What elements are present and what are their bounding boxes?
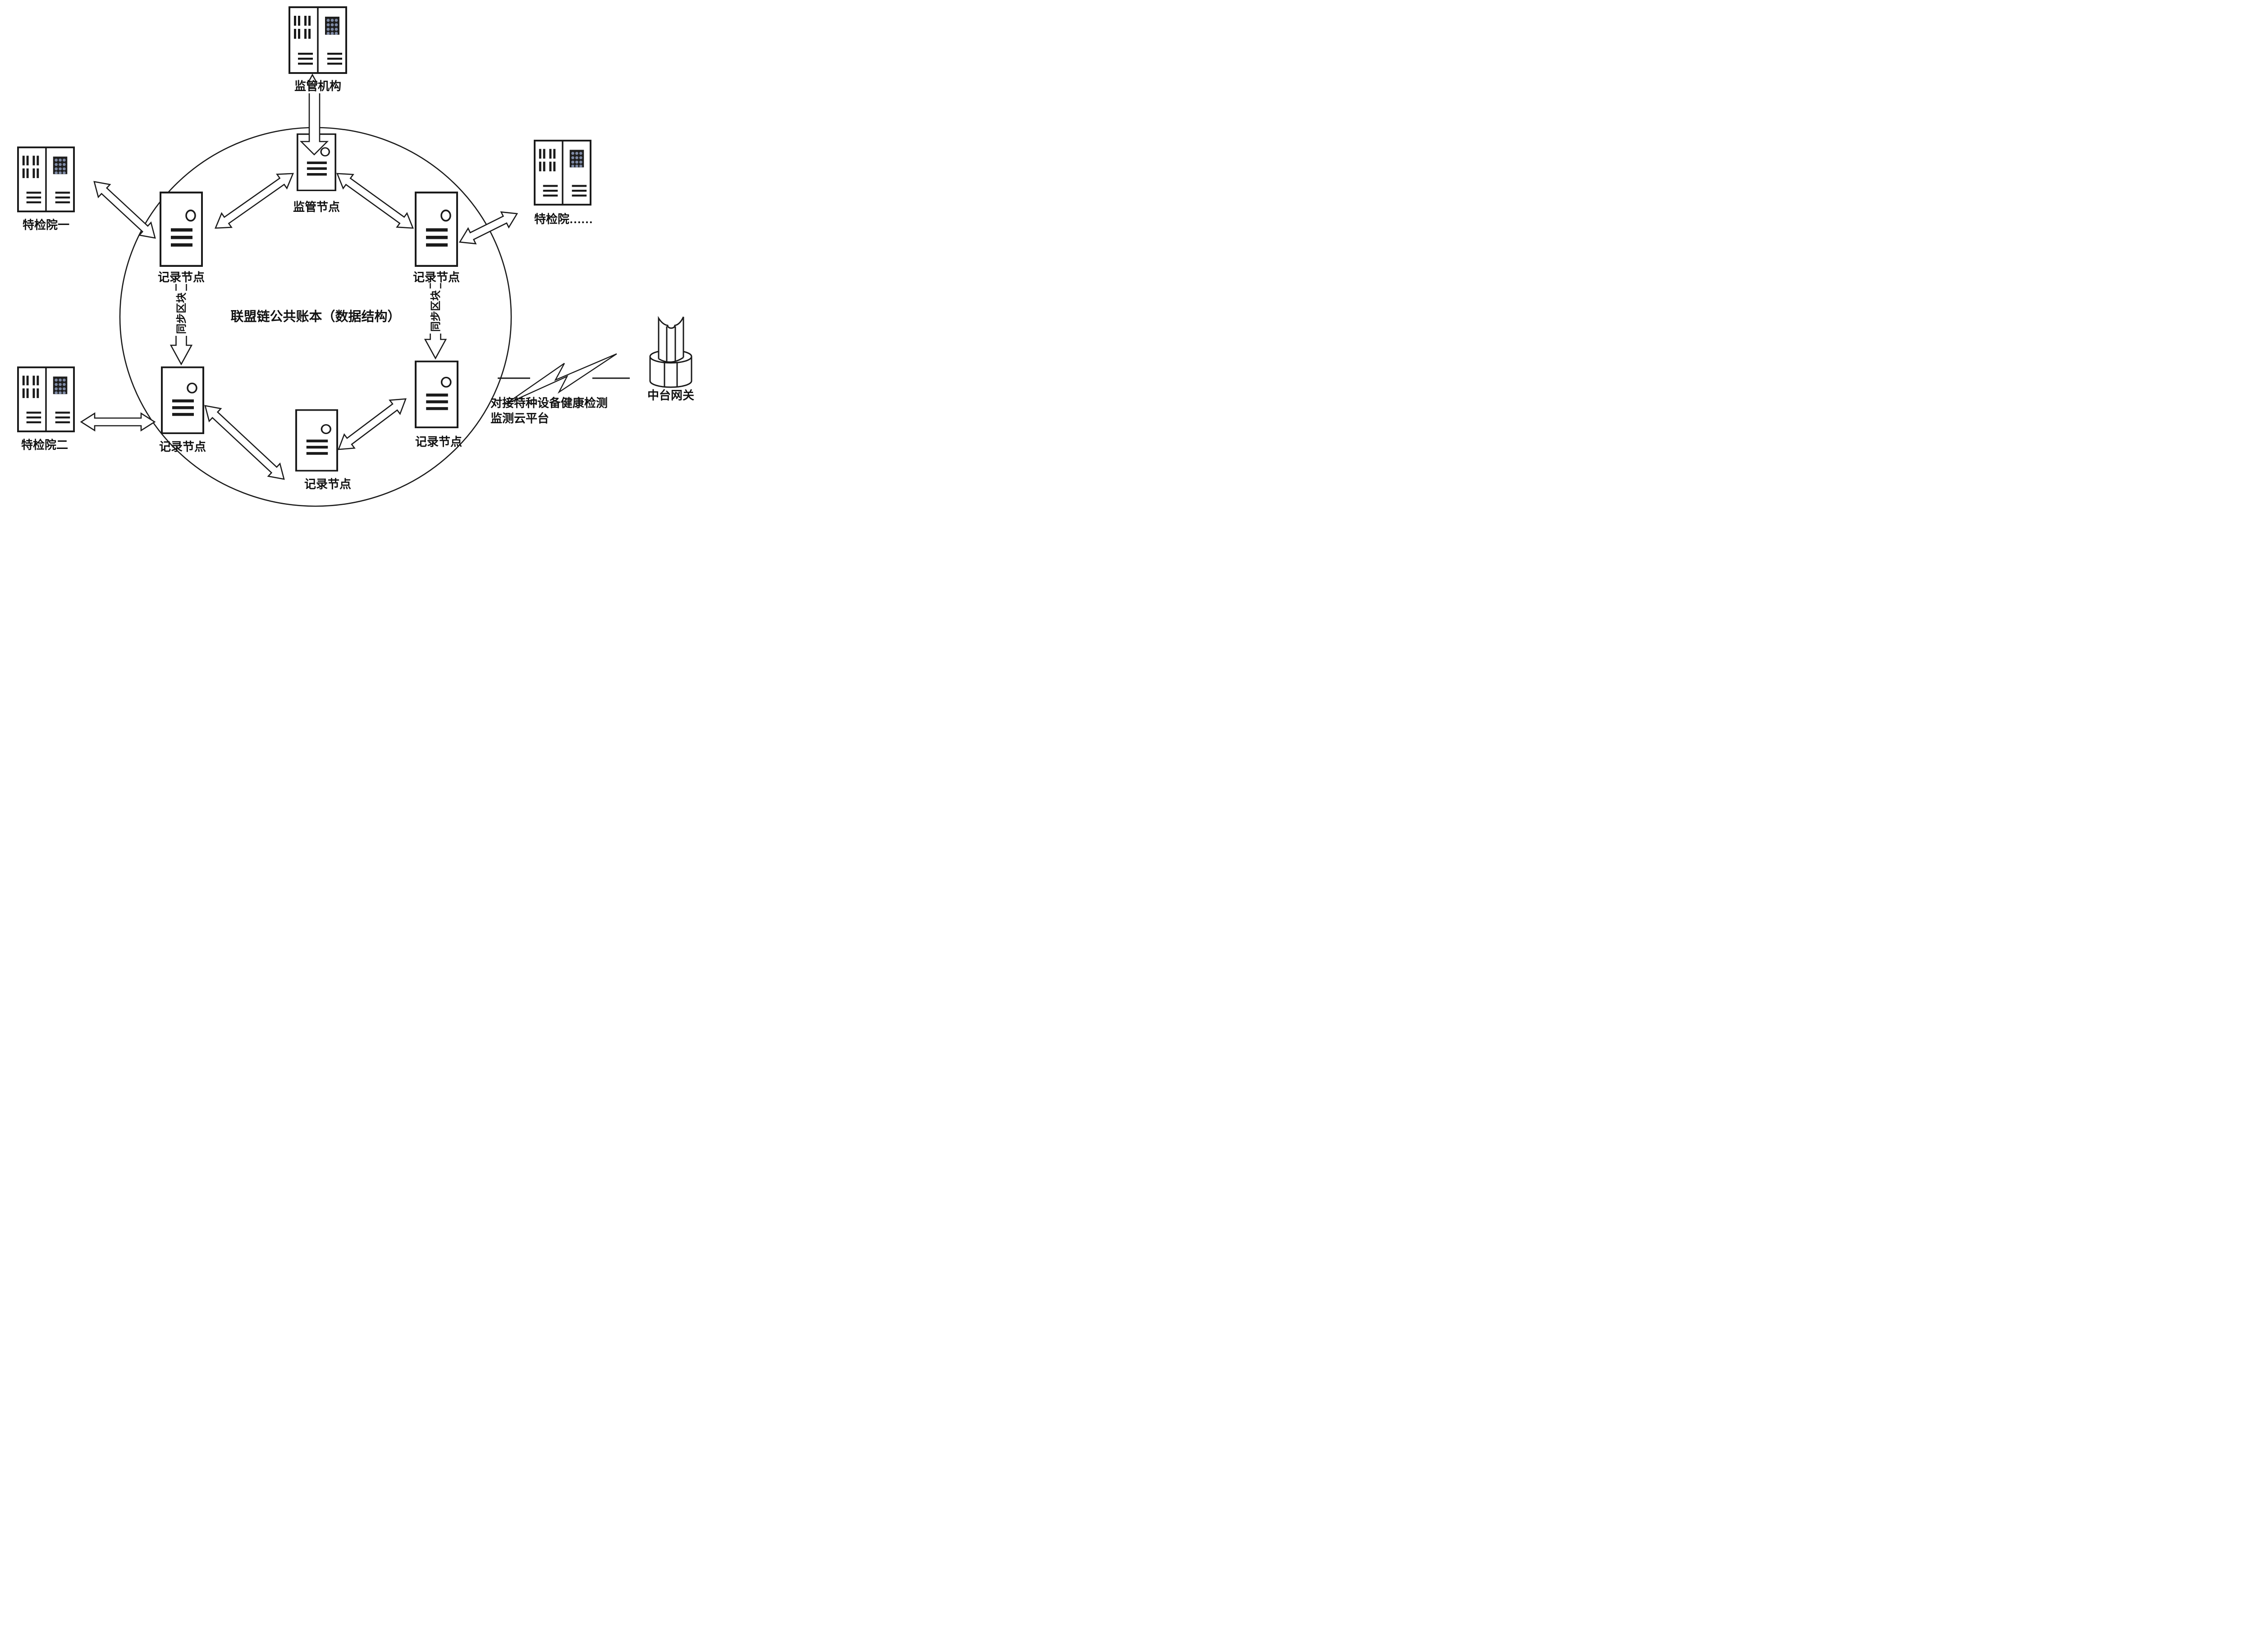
regulator-down-arrow (301, 93, 327, 155)
record-node-lower-left-label: 记录节点 (159, 440, 206, 453)
regulator-label: 监管机构 (294, 80, 341, 93)
supervisory-node-label: 监管节点 (293, 200, 340, 214)
institute2-cabinet-icon (18, 367, 74, 431)
record-node-bottom-center-icon (296, 410, 337, 471)
instituteN-cabinet-icon (535, 141, 591, 205)
blockchain-consortium-diagram: 同步区块 同步区块 监管机构 监管节点 记录节点 记录节点 记录节点 记录节点 … (0, 0, 703, 512)
institute2-label: 特检院二 (21, 438, 68, 452)
record-node-upper-left-icon (160, 192, 202, 266)
record-node-lower-right-icon (416, 362, 458, 427)
sync-block-label-right: 同步区块 (430, 290, 441, 332)
institute1-cabinet-icon (18, 147, 74, 211)
record-node-upper-right-icon (416, 192, 457, 266)
record-node-upper-right-label: 记录节点 (413, 270, 460, 284)
arrow-institute2-to-lower-left (81, 413, 155, 430)
instituteN-label: 特检院…… (534, 212, 593, 226)
diagram-canvas: 同步区块 同步区块 监管机构 监管节点 记录节点 记录节点 记录节点 记录节点 … (0, 0, 703, 512)
record-node-bottom-center-label: 记录节点 (304, 477, 351, 491)
sync-block-label-right-group: 同步区块 (429, 288, 442, 334)
arrow-instituteN-to-upper-right (460, 212, 517, 243)
cloud-annotation-line2: 监测云平台 (490, 412, 549, 425)
gateway-icon (650, 317, 692, 387)
sync-block-label-left-group: 同步区块 (175, 291, 188, 336)
record-node-upper-left-label: 记录节点 (158, 270, 205, 284)
arrow-bottom-center-to-lower-right (339, 399, 406, 449)
gateway-label: 中台网关 (647, 389, 694, 402)
arrow-institute1-to-upper-left (94, 182, 155, 238)
cloud-annotation-line1: 对接特种设备健康检测 (490, 396, 608, 410)
arrow-supervisory-to-upper-right (337, 174, 413, 228)
arrow-lower-left-to-bottom-center (205, 406, 284, 479)
arrow-supervisory-to-upper-left (215, 174, 293, 228)
ledger-center-label: 联盟链公共账本（数据结构） (230, 309, 400, 324)
sync-block-label-left: 同步区块 (176, 293, 187, 334)
institute1-label: 特检院一 (23, 218, 69, 232)
regulator-cabinet-icon (289, 7, 346, 73)
record-node-lower-left-icon (162, 367, 203, 433)
record-node-lower-right-label: 记录节点 (415, 435, 462, 448)
